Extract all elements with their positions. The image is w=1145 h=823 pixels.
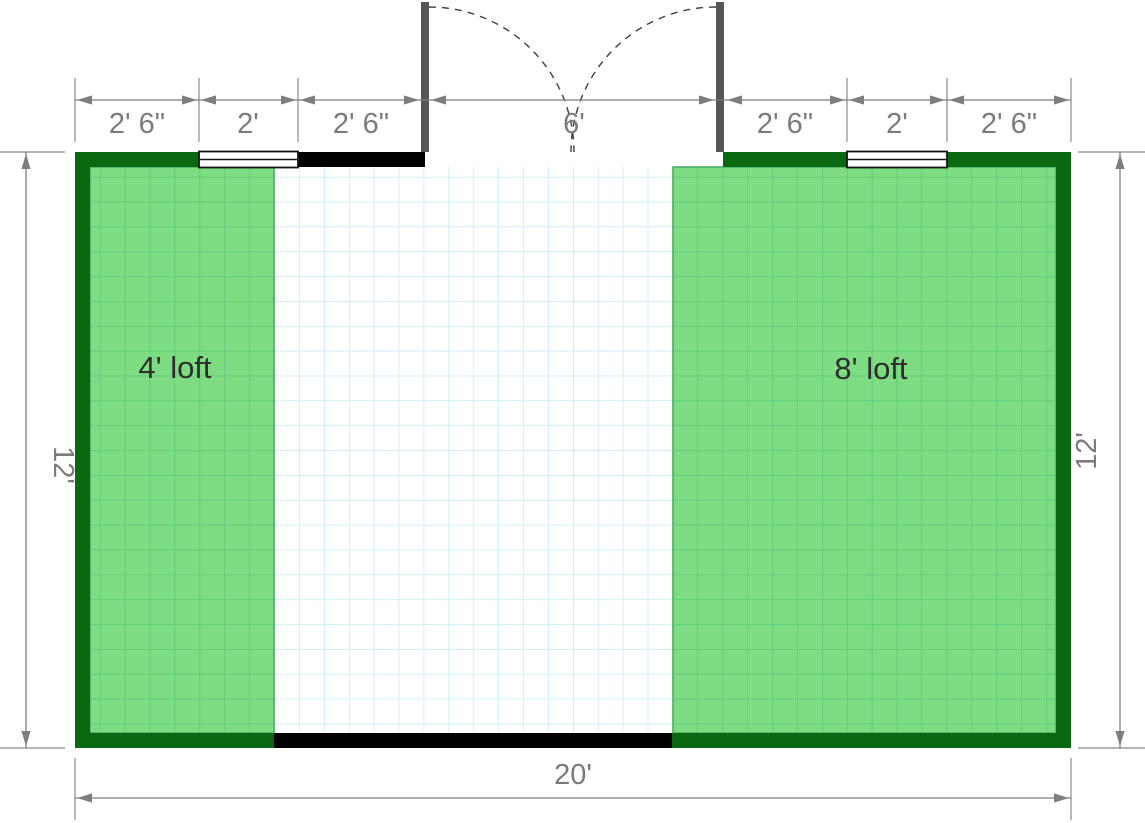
dimension-top: 2' 6" 2' 2' 6" 6' 2' 6" 2' 2' 6"	[75, 78, 1071, 142]
dim-label-right: 12'	[1071, 432, 1103, 470]
dim-label-top-2: 2'	[237, 108, 259, 140]
dim-label-bottom: 20'	[554, 759, 592, 791]
dimension-right: 12'	[1071, 152, 1145, 748]
wall-top-left-green[interactable]	[75, 152, 199, 167]
door-swing-arc-right	[571, 7, 716, 152]
dim-label-top-3: 2' 6"	[333, 108, 389, 140]
loft-4ft-label: 4' loft	[138, 350, 212, 385]
dim-label-left: 12'	[47, 446, 79, 484]
wall-bottom-mid-black[interactable]	[274, 733, 672, 748]
dim-label-top-7: 2' 6"	[981, 108, 1037, 140]
wall-bottom-left-green[interactable]	[75, 733, 274, 748]
floor-plan-canvas: 4' loft 8' loft	[0, 0, 1145, 823]
window-left[interactable]	[199, 152, 298, 168]
door-leaf-right[interactable]	[716, 2, 724, 152]
dim-label-top-4: 6'	[563, 108, 585, 140]
dim-label-top-1: 2' 6"	[109, 108, 165, 140]
loft-4ft[interactable]: 4' loft	[90, 167, 274, 733]
dimension-left: 12'	[0, 152, 79, 748]
dimension-bottom: 20'	[75, 758, 1071, 820]
loft-8ft-grid	[673, 167, 1056, 733]
window-right[interactable]	[847, 152, 947, 168]
wall-right[interactable]	[1056, 152, 1071, 748]
door-leaf-left[interactable]	[421, 2, 429, 152]
wall-top-mid-black[interactable]	[298, 152, 425, 167]
loft-4ft-grid	[90, 167, 274, 733]
dim-label-top-6: 2'	[886, 108, 908, 140]
wall-bottom-right-green[interactable]	[672, 733, 1071, 748]
door-swing-arc-left	[429, 7, 574, 152]
dim-label-top-5: 2' 6"	[757, 108, 813, 140]
loft-8ft-label: 8' loft	[834, 351, 908, 386]
loft-8ft[interactable]: 8' loft	[673, 167, 1056, 733]
